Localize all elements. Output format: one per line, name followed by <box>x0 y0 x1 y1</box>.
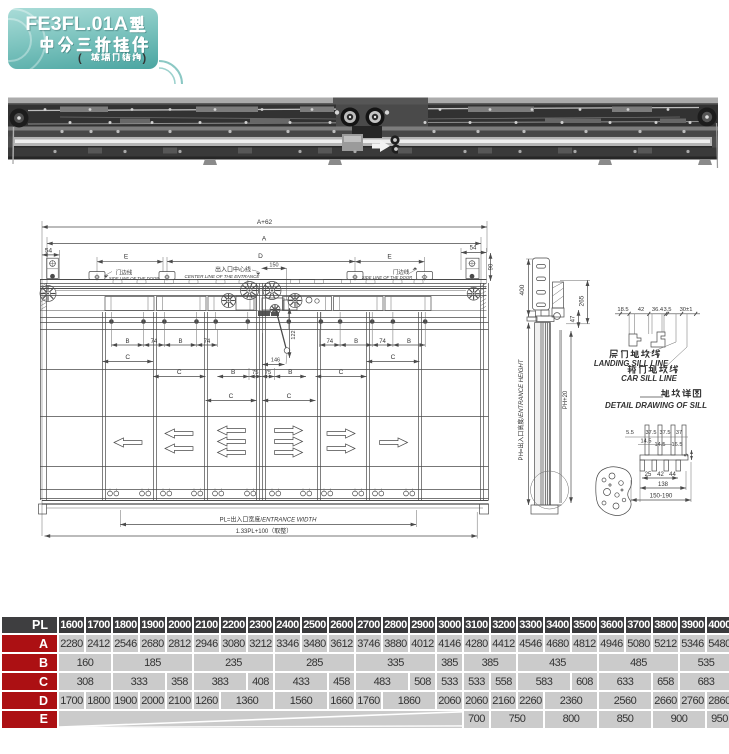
svg-text:265: 265 <box>579 295 586 306</box>
svg-text:B: B <box>125 339 129 345</box>
svg-text:74: 74 <box>379 339 386 345</box>
svg-text:C: C <box>339 369 344 376</box>
svg-text:C: C <box>391 354 396 361</box>
svg-text:37: 37 <box>676 430 682 436</box>
svg-text:CAR SILL LINE: CAR SILL LINE <box>621 374 678 383</box>
svg-text:C: C <box>177 369 182 376</box>
svg-text:54: 54 <box>45 247 53 254</box>
svg-text:D: D <box>258 253 263 260</box>
svg-text:1.33PL+100（取整）: 1.33PL+100（取整） <box>236 527 293 535</box>
svg-text:138: 138 <box>658 482 669 488</box>
svg-text:PL=出入口宽度/ENTRANCE WIDTH: PL=出入口宽度/ENTRANCE WIDTH <box>220 516 318 524</box>
svg-text:90: 90 <box>489 263 495 270</box>
svg-text:C: C <box>287 393 292 400</box>
svg-text:74: 74 <box>151 339 158 345</box>
svg-text:150-190: 150-190 <box>650 493 673 500</box>
svg-text:A+62: A+62 <box>257 219 273 226</box>
svg-text:C: C <box>125 354 130 361</box>
svg-text:42: 42 <box>638 307 644 313</box>
svg-text:122: 122 <box>291 330 297 339</box>
svg-text:36.4: 36.4 <box>652 307 664 313</box>
svg-text:74: 74 <box>204 339 211 345</box>
svg-text:14.5: 14.5 <box>655 442 666 448</box>
svg-text:37.5: 37.5 <box>660 430 671 436</box>
svg-text:146: 146 <box>271 358 280 364</box>
svg-text:B: B <box>288 369 292 376</box>
svg-text:75: 75 <box>252 370 258 376</box>
svg-text:75: 75 <box>265 370 271 376</box>
svg-text:5: 5 <box>684 453 690 456</box>
svg-text:30±1: 30±1 <box>680 307 693 313</box>
svg-text:16.5: 16.5 <box>672 442 683 448</box>
svg-text:PH+20: PH+20 <box>563 390 569 409</box>
svg-text:A: A <box>262 236 267 243</box>
svg-text:42: 42 <box>657 472 664 478</box>
svg-text:150: 150 <box>269 262 278 268</box>
svg-text:PH=出入口高度/ENTRANCE HEIGHT: PH=出入口高度/ENTRANCE HEIGHT <box>517 358 525 460</box>
svg-text:E: E <box>387 253 392 260</box>
svg-text:54: 54 <box>470 246 477 252</box>
svg-text:SIDE LINE OF THE DOOR: SIDE LINE OF THE DOOR <box>109 276 159 281</box>
svg-text:44: 44 <box>669 472 676 478</box>
svg-text:14.5: 14.5 <box>641 439 652 445</box>
svg-text:B: B <box>231 369 235 376</box>
svg-text:B: B <box>178 339 182 345</box>
svg-text:5.5: 5.5 <box>626 430 634 436</box>
svg-text:E: E <box>124 253 129 260</box>
svg-text:37.5: 37.5 <box>646 430 657 436</box>
svg-text:47: 47 <box>571 315 577 322</box>
svg-text:25: 25 <box>645 472 652 478</box>
svg-text:C: C <box>229 393 234 400</box>
svg-text:B: B <box>407 339 411 345</box>
svg-text:CENTER LINE OF THE ENTRANCE: CENTER LINE OF THE ENTRANCE <box>185 274 261 279</box>
svg-text:18.5: 18.5 <box>617 307 628 313</box>
svg-text:DETAIL DRAWING OF SILL: DETAIL DRAWING OF SILL <box>605 401 707 410</box>
svg-text:400: 400 <box>519 284 526 295</box>
svg-text:出入口中心线: 出入口中心线 <box>215 266 251 274</box>
svg-text:74: 74 <box>326 339 333 345</box>
svg-text:3.5: 3.5 <box>663 307 671 313</box>
svg-text:B: B <box>354 339 358 345</box>
